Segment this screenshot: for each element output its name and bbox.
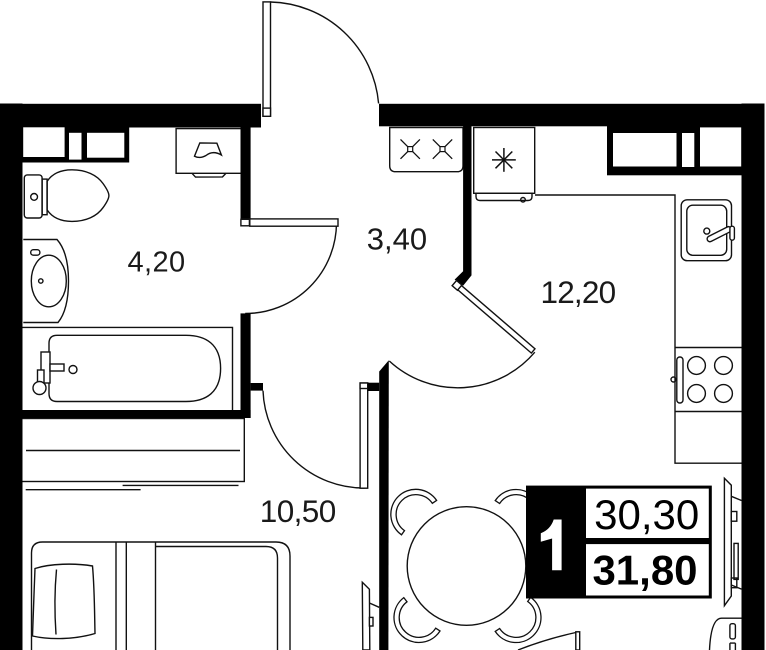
svg-text:4,20: 4,20 <box>127 247 185 279</box>
svg-text:3,40: 3,40 <box>367 222 427 257</box>
svg-text:12,20: 12,20 <box>540 274 615 310</box>
svg-text:30,30: 30,30 <box>594 491 699 538</box>
svg-text:10,50: 10,50 <box>260 493 336 529</box>
svg-text:31,80: 31,80 <box>592 547 697 594</box>
